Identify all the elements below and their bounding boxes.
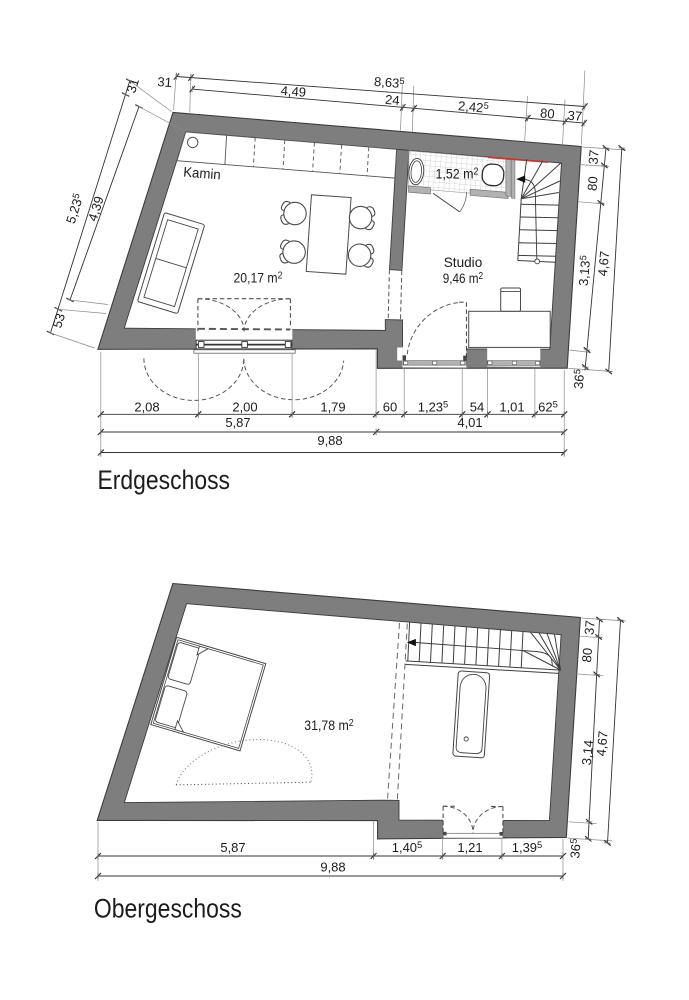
svg-text:37: 37	[567, 108, 583, 124]
svg-text:Studio: Studio	[444, 254, 483, 270]
svg-text:1,01: 1,01	[499, 400, 524, 415]
svg-text:4,01: 4,01	[457, 415, 482, 430]
svg-text:5,87: 5,87	[220, 840, 245, 855]
svg-text:60: 60	[383, 400, 397, 415]
svg-text:31,78 m2: 31,78 m2	[304, 717, 354, 733]
svg-text:37: 37	[581, 620, 597, 636]
svg-text:80: 80	[540, 105, 556, 121]
svg-text:2,00: 2,00	[232, 400, 257, 415]
svg-text:24: 24	[385, 92, 401, 108]
svg-text:2,08: 2,08	[134, 400, 159, 415]
svg-text:20,17 m2: 20,17 m2	[234, 270, 283, 286]
svg-text:1,79: 1,79	[320, 400, 345, 415]
svg-text:9,88: 9,88	[317, 433, 342, 448]
svg-text:9,88: 9,88	[320, 860, 345, 875]
svg-text:80: 80	[579, 647, 595, 663]
svg-text:Erdgeschoss: Erdgeschoss	[98, 465, 231, 495]
svg-text:80: 80	[584, 176, 600, 192]
svg-text:Kamin: Kamin	[183, 164, 222, 183]
svg-text:37: 37	[585, 149, 601, 165]
svg-text:54: 54	[470, 400, 484, 415]
svg-text:31: 31	[157, 74, 173, 90]
svg-text:4,49: 4,49	[280, 83, 307, 100]
svg-text:Obergeschoss: Obergeschoss	[94, 894, 242, 924]
svg-text:9,46 m2: 9,46 m2	[443, 270, 484, 286]
svg-text:1,52 m2: 1,52 m2	[436, 167, 479, 182]
svg-text:4,67: 4,67	[593, 730, 610, 757]
svg-text:5,87: 5,87	[225, 415, 250, 430]
svg-text:4,67: 4,67	[595, 250, 612, 277]
svg-text:1,21: 1,21	[457, 840, 482, 855]
